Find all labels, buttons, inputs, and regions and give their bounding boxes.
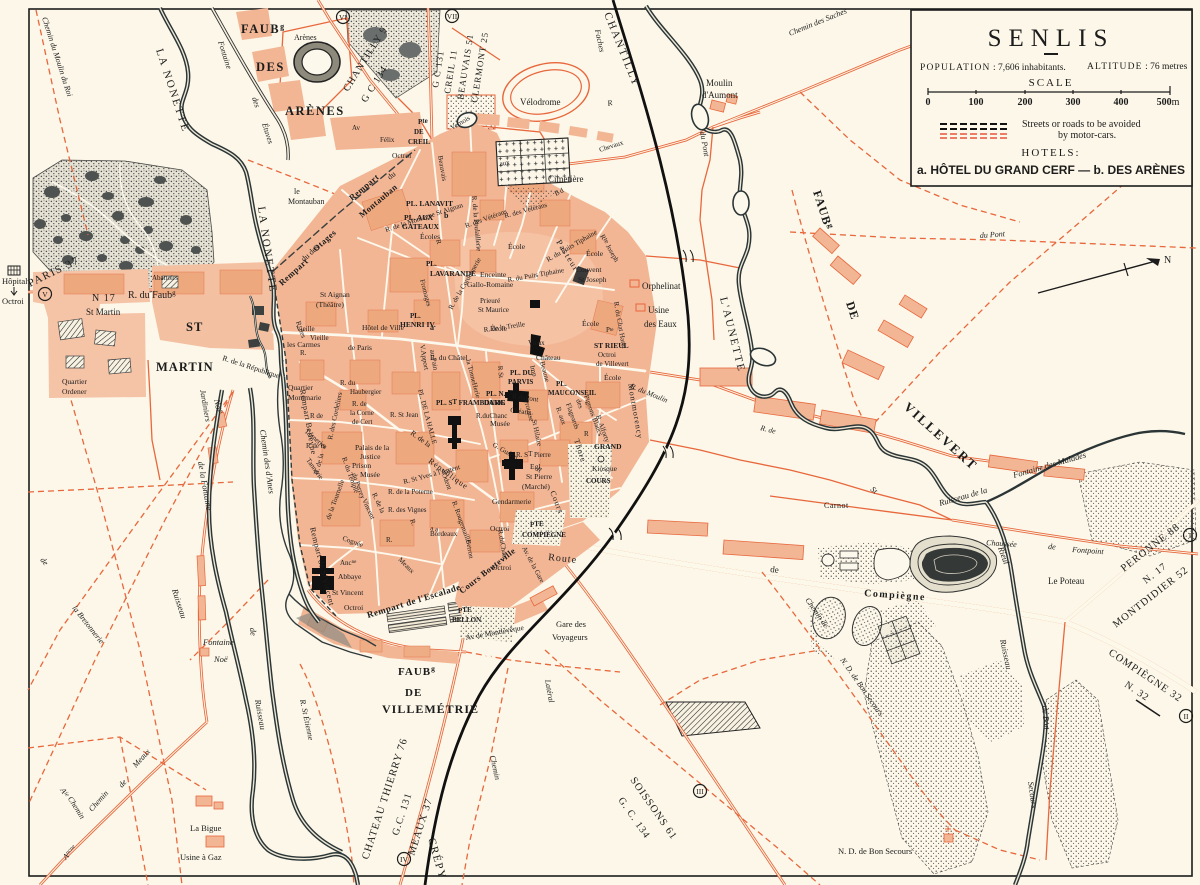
svg-text:PL.: PL. (556, 380, 567, 388)
svg-text:R. des Vignes: R. des Vignes (388, 506, 427, 514)
svg-text:PL.: PL. (426, 260, 437, 268)
svg-text:la Corne: la Corne (350, 409, 374, 417)
svg-text:de Villevert: de Villevert (596, 360, 629, 368)
svg-text:N. D. de Bon Secours: N. D. de Bon Secours (838, 846, 912, 856)
svg-text:R.: R. (386, 536, 393, 544)
svg-text:R.duChanc: R.duChanc (476, 412, 507, 420)
svg-text:Moulin: Moulin (706, 78, 733, 88)
svg-text:R. de: R. de (352, 400, 367, 408)
svg-text:École: École (508, 241, 526, 251)
svg-text:Usine: Usine (648, 305, 669, 315)
svg-text:SENLIS: SENLIS (988, 25, 1115, 52)
svg-text:R: R (584, 430, 589, 438)
svg-text:VI: VI (339, 13, 347, 22)
svg-text:de Cert: de Cert (352, 418, 372, 426)
svg-text:ARÈNES: ARÈNES (285, 104, 345, 118)
svg-text:N: N (1164, 255, 1171, 266)
svg-text:Vieux: Vieux (528, 339, 545, 347)
svg-text:N 17: N 17 (92, 293, 116, 304)
svg-text:400: 400 (1114, 97, 1129, 108)
svg-text:PL. N.: PL. N. (486, 390, 506, 398)
svg-text:St Aignan: St Aignan (320, 290, 350, 299)
svg-text:Arènes: Arènes (294, 33, 317, 42)
svg-text:COMPIÈGNE: COMPIÈGNE (522, 531, 566, 539)
svg-text:Hôtel de Ville: Hôtel de Ville (362, 323, 405, 332)
svg-text:du Pont: du Pont (980, 229, 1006, 240)
svg-text:Ordener: Ordener (62, 387, 87, 396)
svg-text:Justice: Justice (360, 452, 381, 461)
svg-text:BELLON: BELLON (452, 616, 481, 624)
svg-text:Cimetière: Cimetière (548, 174, 584, 184)
svg-text:by motor-cars.: by motor-cars. (1058, 130, 1116, 141)
svg-text:200: 200 (1018, 97, 1033, 108)
svg-text:Octroi: Octroi (392, 151, 411, 160)
svg-text:DE: DE (414, 128, 424, 136)
svg-text:Haubergier: Haubergier (350, 388, 382, 396)
svg-text:DES: DES (256, 60, 285, 74)
svg-text:R. du Faubg: R. du Faubg (128, 289, 176, 301)
svg-text:St Pierre: St Pierre (526, 472, 553, 481)
svg-text:R. du: R. du (340, 379, 356, 387)
svg-text:PARVIS: PARVIS (508, 378, 533, 386)
svg-text:de: de (770, 564, 779, 575)
svg-text:500m: 500m (1157, 97, 1180, 108)
svg-text:Musée: Musée (490, 419, 511, 428)
svg-text:Kiosque: Kiosque (592, 464, 618, 473)
svg-text:Orphelinat: Orphelinat (642, 281, 681, 291)
svg-text:V: V (42, 290, 48, 299)
svg-text:Montauban: Montauban (288, 197, 324, 206)
svg-text:Usine à Gaz: Usine à Gaz (180, 852, 222, 862)
svg-text:Abattoirs: Abattoirs (152, 274, 178, 282)
svg-text:MARTIN: MARTIN (156, 360, 214, 374)
svg-text:Vieille: Vieille (310, 334, 329, 342)
svg-text:des Eaux: des Eaux (644, 319, 677, 329)
svg-text:Octroi: Octroi (344, 603, 363, 612)
svg-text:0: 0 (926, 97, 931, 108)
svg-text:Streets or roads to be avoided: Streets or roads to be avoided (1022, 119, 1141, 130)
svg-text:R. ST Pierre: R. ST Pierre (516, 450, 551, 459)
svg-text:POPULATION : 7,606 inhabitants: POPULATION : 7,606 inhabitants. (920, 63, 1066, 73)
svg-text:VII: VII (447, 12, 458, 21)
svg-text:Gare des: Gare des (556, 619, 586, 629)
svg-text:Prison: Prison (352, 461, 371, 470)
svg-text:IV: IV (400, 855, 408, 864)
svg-text:Enceinte: Enceinte (480, 270, 507, 279)
svg-text:Fontaine: Fontaine (202, 637, 234, 647)
svg-text:R.: R. (300, 349, 307, 357)
svg-text:Octroi: Octroi (2, 296, 24, 306)
svg-text:Voyageurs: Voyageurs (552, 632, 588, 642)
svg-text:PL. ST FRAMBOURG: PL. ST FRAMBOURG (436, 398, 506, 407)
svg-text:de: de (248, 627, 259, 636)
svg-text:École: École (604, 372, 622, 382)
svg-text:COURS: COURS (586, 477, 611, 485)
svg-text:Av: Av (352, 124, 361, 132)
svg-text:Félix: Félix (380, 136, 395, 144)
svg-text:CREIL: CREIL (408, 138, 431, 146)
svg-text:Château: Château (536, 353, 561, 362)
svg-text:SCALE: SCALE (1029, 77, 1074, 89)
svg-text:de: de (1048, 542, 1057, 552)
svg-text:Hôpital: Hôpital (2, 276, 28, 286)
svg-text:École: École (582, 318, 600, 328)
svg-text:Abbaye: Abbaye (338, 572, 362, 581)
svg-text:(Théâtre): (Théâtre) (316, 300, 344, 309)
svg-text:Musée: Musée (360, 470, 381, 479)
svg-text:Gallo-Romaine: Gallo-Romaine (467, 280, 514, 289)
svg-text:de Paris: de Paris (348, 343, 372, 352)
svg-text:ALTITUDE : 76 metres: ALTITUDE : 76 metres (1087, 62, 1188, 72)
svg-text:Carnot: Carnot (824, 501, 849, 510)
svg-text:R de: R de (310, 412, 323, 420)
svg-text:Prieuré: Prieuré (480, 297, 500, 305)
svg-text:III: III (696, 787, 704, 796)
svg-text:(Marché): (Marché) (522, 482, 550, 491)
svg-text:La Bigue: La Bigue (190, 823, 222, 833)
svg-text:ST: ST (186, 320, 203, 334)
svg-text:St Vincent: St Vincent (332, 588, 364, 597)
svg-text:École: École (586, 248, 604, 258)
svg-text:Gendarmerie: Gendarmerie (492, 497, 532, 506)
svg-text:a: a (430, 323, 434, 332)
svg-text:Palais de la: Palais de la (355, 443, 390, 452)
svg-text:Pte: Pte (606, 326, 614, 334)
svg-text:Noë: Noë (213, 654, 228, 664)
svg-text:FAUBg: FAUBg (398, 664, 436, 678)
svg-text:PL.: PL. (410, 312, 421, 320)
svg-text:Octroi: Octroi (598, 351, 616, 359)
svg-text:100: 100 (969, 97, 984, 108)
svg-text:PTE: PTE (530, 520, 544, 529)
svg-text:R St: R St (496, 365, 505, 378)
svg-text:St Joseph: St Joseph (578, 275, 607, 284)
svg-text:Vélodrome: Vélodrome (520, 97, 561, 107)
svg-text:300: 300 (1066, 97, 1081, 108)
svg-text:PTE: PTE (458, 606, 472, 615)
svg-text:FAUBg: FAUBg (241, 22, 286, 36)
svg-text:Quartier: Quartier (62, 377, 87, 386)
svg-text:d'Aumont: d'Aumont (702, 90, 738, 100)
svg-text:le: le (294, 187, 300, 196)
svg-text:Bordeaux: Bordeaux (430, 530, 458, 538)
svg-text:GRAND: GRAND (594, 442, 622, 451)
svg-text:St Maurice: St Maurice (478, 306, 509, 314)
svg-text:R. de la Poterne: R. de la Poterne (388, 488, 433, 496)
svg-text:St Martin: St Martin (86, 307, 121, 317)
svg-text:DE: DE (405, 687, 422, 699)
svg-text:Le Poteau: Le Poteau (1048, 576, 1085, 586)
svg-text:HOTELS:: HOTELS: (1021, 147, 1080, 159)
svg-text:R. St Jean: R. St Jean (390, 411, 419, 419)
svg-text:II: II (1184, 712, 1189, 721)
svg-text:Pte: Pte (418, 117, 428, 126)
svg-text:a. HÔTEL DU GRAND CERF — b. DE: a. HÔTEL DU GRAND CERF — b. DES ARÈNES (917, 162, 1185, 177)
svg-text:VILLEMÉTRIE: VILLEMÉTRIE (382, 702, 479, 716)
